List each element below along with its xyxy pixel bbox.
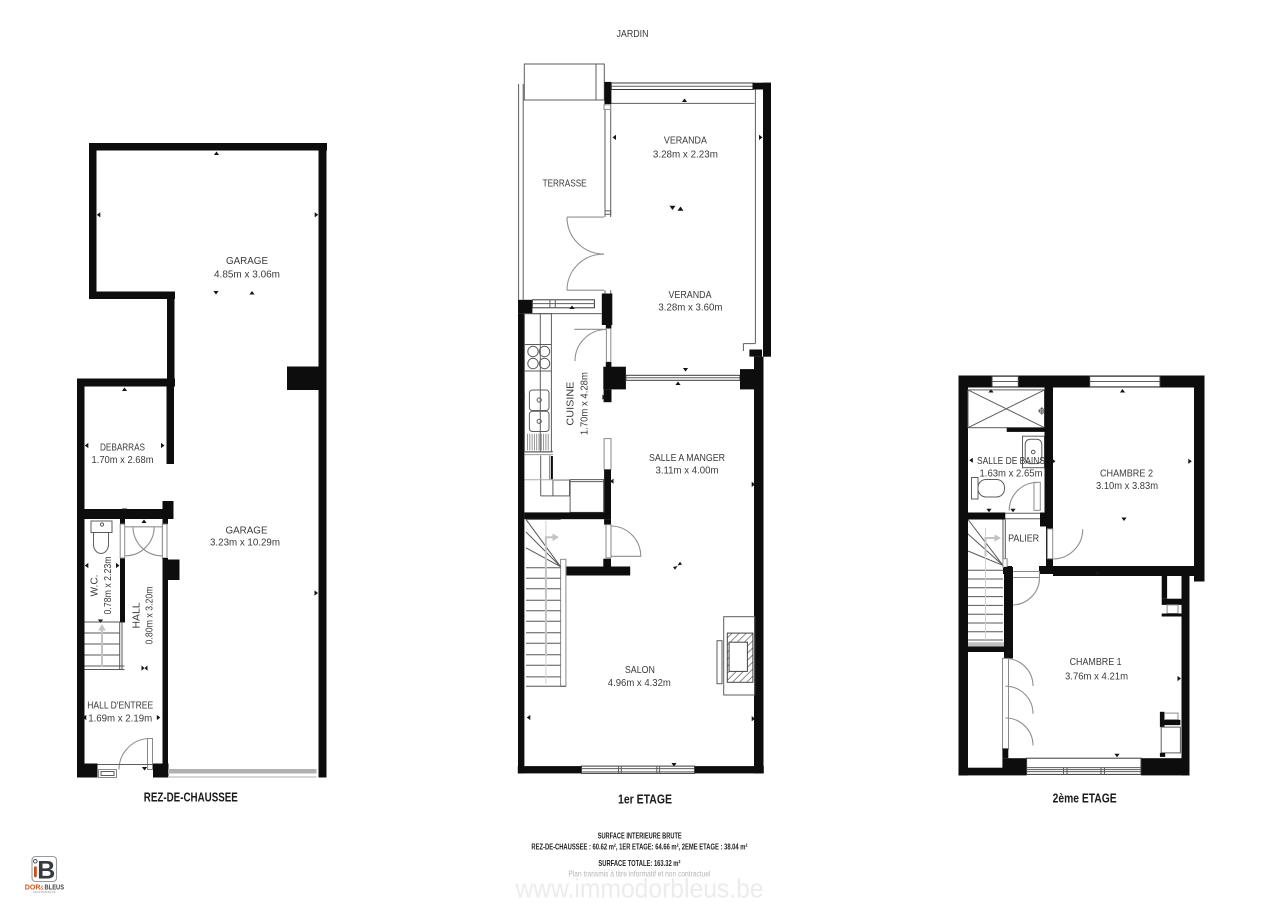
svg-text:3.28m x 2.23m: 3.28m x 2.23m — [653, 149, 718, 161]
svg-text:SURFACE INTERIEURE BRUTE: SURFACE INTERIEURE BRUTE — [598, 832, 682, 841]
svg-text:3.28m x 3.60m: 3.28m x 3.60m — [658, 302, 722, 314]
svg-text:B: B — [37, 857, 55, 885]
svg-text:JARDIN: JARDIN — [617, 28, 649, 40]
svg-text:3.76m x 4.21m: 3.76m x 4.21m — [1065, 671, 1128, 683]
svg-text:VERANDA: VERANDA — [669, 289, 712, 301]
svg-text:AGENCE IMMOBILIERE SPRL: AGENCE IMMOBILIERE SPRL — [33, 890, 56, 894]
svg-text:Plan transmis à titre informat: Plan transmis à titre informatif et non … — [568, 869, 710, 879]
svg-text:4.85m x 3.06m: 4.85m x 3.06m — [214, 269, 280, 281]
svg-text:W.C.: W.C. — [89, 575, 101, 597]
svg-text:3.10m x 3.83m: 3.10m x 3.83m — [1096, 480, 1158, 492]
svg-text:SURFACE TOTALE: 163.32 m²: SURFACE TOTALE: 163.32 m² — [598, 858, 680, 868]
svg-text:REZ-DE-CHAUSSEE: REZ-DE-CHAUSSEE — [144, 791, 238, 805]
svg-text:1er ETAGE: 1er ETAGE — [618, 793, 672, 807]
svg-text:3.11m x 4.00m: 3.11m x 4.00m — [656, 465, 719, 477]
svg-text:CHAMBRE 1: CHAMBRE 1 — [1070, 656, 1122, 668]
svg-text:SALLE A MANGER: SALLE A MANGER — [649, 452, 725, 464]
svg-text:1.63m x 2.65m: 1.63m x 2.65m — [980, 468, 1043, 480]
svg-text:SALLE DE BAINS: SALLE DE BAINS — [977, 455, 1045, 467]
svg-text:TERRASSE: TERRASSE — [543, 178, 587, 190]
svg-text:3.23m x 10.29m: 3.23m x 10.29m — [210, 537, 280, 549]
svg-text:HALL: HALL — [131, 602, 143, 628]
svg-text:0.80m x 3.20m: 0.80m x 3.20m — [144, 586, 156, 644]
svg-text:SALON: SALON — [625, 664, 655, 676]
svg-text:CUISINE: CUISINE — [565, 382, 577, 426]
svg-text:GARAGE: GARAGE — [226, 525, 268, 537]
svg-text:0.78m x 2.23m: 0.78m x 2.23m — [102, 556, 114, 614]
svg-text:1.70m x 4.28m: 1.70m x 4.28m — [579, 372, 591, 435]
svg-text:1.70m x 2.68m: 1.70m x 2.68m — [92, 454, 154, 466]
svg-text:VERANDA: VERANDA — [664, 135, 707, 147]
svg-text:4.96m x 4.32m: 4.96m x 4.32m — [608, 677, 671, 689]
svg-text:CHAMBRE 2: CHAMBRE 2 — [1100, 468, 1153, 480]
svg-text:REZ-DE-CHAUSSEE : 60.62 m², 1E: REZ-DE-CHAUSSEE : 60.62 m², 1ER ETAGE: 6… — [531, 843, 747, 852]
svg-text:DEBARRAS: DEBARRAS — [100, 442, 145, 454]
svg-text:GARAGE: GARAGE — [226, 255, 268, 267]
svg-text:2ème ETAGE: 2ème ETAGE — [1053, 792, 1117, 806]
svg-text:PALIER: PALIER — [1008, 533, 1039, 545]
svg-text:HALL D'ENTREE: HALL D'ENTREE — [87, 700, 153, 712]
svg-text:1.69m x 2.19m: 1.69m x 2.19m — [88, 713, 152, 725]
